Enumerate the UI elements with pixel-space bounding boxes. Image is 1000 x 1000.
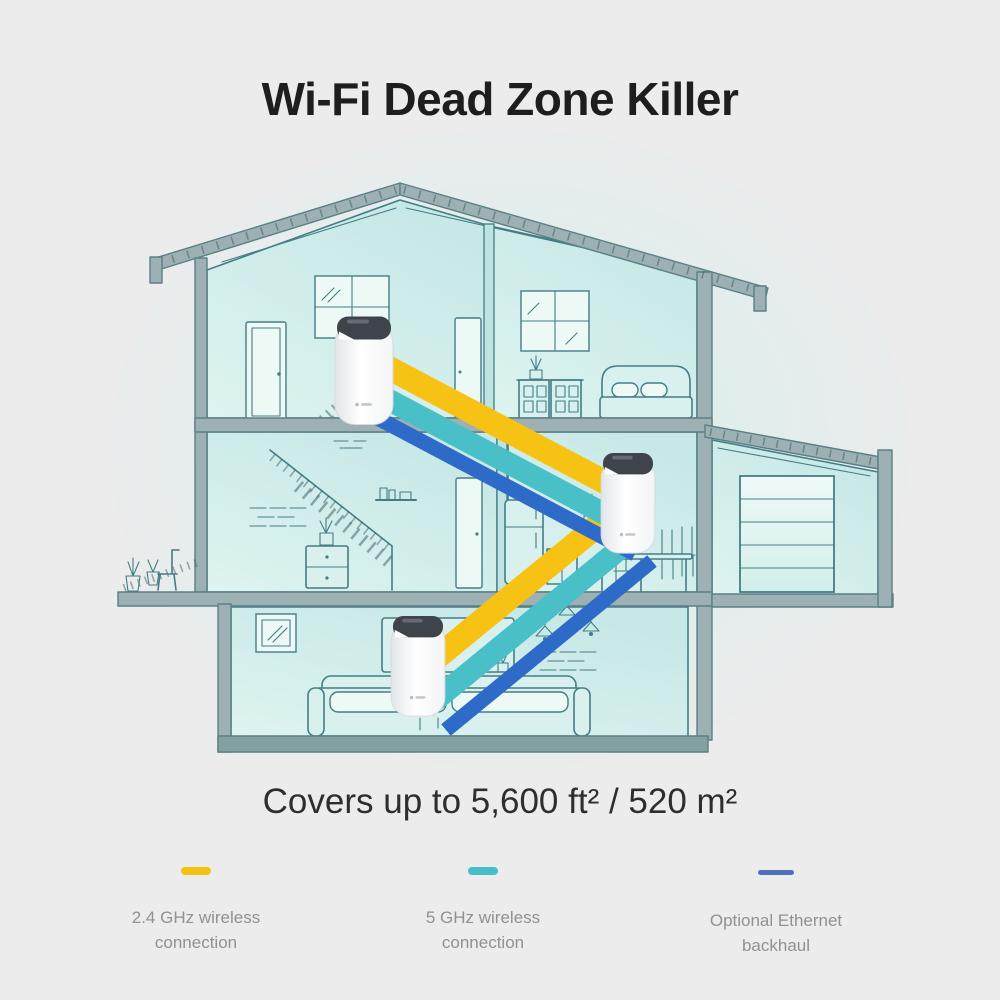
marketing-graphic: Wi-Fi Dead Zone Killer Covers up to 5,60…	[0, 0, 1000, 1000]
garage-floor-slab	[712, 594, 893, 607]
coverage-text: Covers up to 5,600 ft² / 520 m²	[0, 782, 1000, 822]
legend-item-ethernet: Optional Ethernet backhaul	[676, 862, 876, 958]
living-room-door	[456, 478, 482, 588]
bedroom-window	[521, 291, 589, 351]
page-title: Wi-Fi Dead Zone Killer	[0, 72, 1000, 126]
house-diagram	[0, 0, 1000, 1000]
garage-wall-right	[878, 450, 892, 607]
legend-item-24ghz: 2.4 GHz wireless connection	[96, 862, 296, 955]
legend-dash-ethernet-icon	[758, 870, 794, 875]
legend-dash-5ghz-icon	[468, 867, 498, 875]
nightstand	[306, 546, 348, 588]
deco-unit-ground	[391, 616, 445, 730]
deco-unit-kitchen	[601, 453, 655, 553]
deco-unit-attic	[335, 317, 393, 425]
framed-picture	[256, 614, 296, 652]
ground-left-wall	[218, 604, 231, 752]
ground-bottom-slab	[218, 736, 708, 752]
attic-door	[246, 322, 286, 422]
legend-label-ethernet: Optional Ethernet backhaul	[676, 909, 876, 958]
bed	[600, 366, 692, 424]
legend-dash-24ghz-icon	[181, 867, 211, 875]
legend-label-24ghz: 2.4 GHz wireless connection	[96, 906, 296, 955]
garage-door	[740, 476, 834, 592]
legend-item-5ghz: 5 GHz wireless connection	[383, 862, 583, 955]
wall-right	[697, 272, 712, 740]
attic-partition-wall	[484, 224, 494, 418]
legend-label-5ghz: 5 GHz wireless connection	[383, 906, 583, 955]
